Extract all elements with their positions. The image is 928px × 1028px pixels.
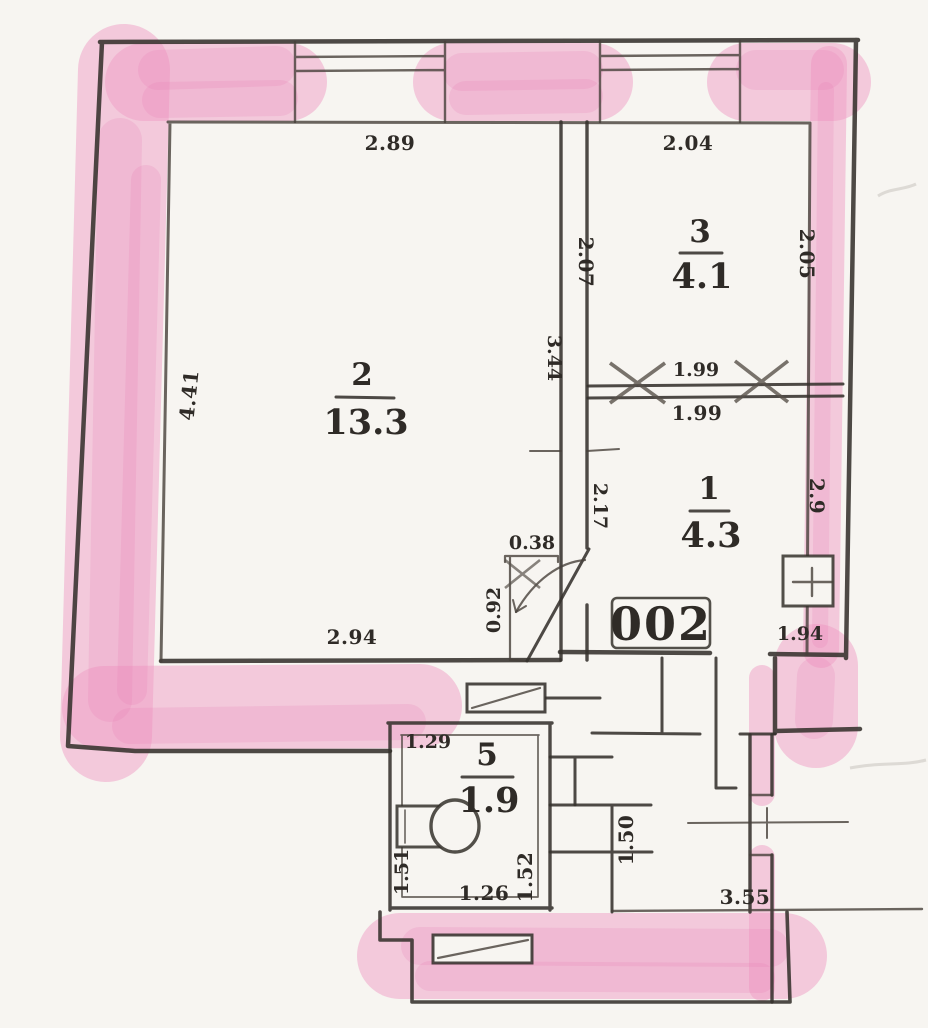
- room2-fraction-line: [336, 397, 394, 398]
- room2-number: 2: [351, 357, 373, 393]
- dim-room5-bottom: 1.26: [459, 881, 510, 905]
- room2-area: 13.3: [323, 402, 408, 443]
- scanned-floor-plan-page: 002 2 13.3 3 4.1 1 4.3 5 1.9 2.89 4.41 2…: [0, 0, 928, 1028]
- room1-number: 1: [698, 471, 720, 507]
- dim-room3-top: 2.04: [663, 131, 714, 155]
- room1-area: 4.3: [681, 515, 742, 556]
- marker-texture: [466, 96, 586, 98]
- dim-room1-bottom: 1.94: [777, 623, 823, 645]
- marker-texture: [430, 976, 760, 978]
- dim-hall-wall: 2.17: [589, 483, 611, 529]
- room3-area: 4.1: [672, 256, 733, 297]
- marker-texture: [814, 676, 816, 720]
- dim-partition-left: 3.44: [543, 335, 565, 381]
- dim-door-depth: 0.92: [483, 587, 505, 633]
- marker-texture: [160, 98, 280, 100]
- marker-texture: [110, 140, 120, 700]
- marker-texture: [462, 70, 584, 72]
- niche-box: [783, 556, 833, 606]
- dim-room2-top: 2.89: [365, 131, 416, 155]
- dim-room5-right: 1.52: [513, 852, 537, 903]
- dim-partition-lower: 1.99: [672, 401, 723, 425]
- apartment-number: 002: [610, 597, 712, 651]
- room3-number: 3: [689, 214, 711, 250]
- room5-number: 5: [476, 737, 498, 773]
- floorplan-svg: 002 2 13.3 3 4.1 1 4.3 5 1.9 2.89 4.41 2…: [0, 0, 928, 1028]
- marker-texture: [130, 722, 408, 726]
- dim-lower-room-bottom: 3.55: [720, 885, 771, 909]
- dim-room3-right: 2.05: [795, 229, 819, 280]
- room5-area: 1.9: [459, 780, 520, 821]
- dim-room1-right: 2.9: [805, 478, 829, 514]
- dim-partition-upper: 1.99: [673, 359, 719, 381]
- dim-room3-left: 2.07: [574, 237, 598, 288]
- dim-room5-top: 1.29: [405, 731, 451, 753]
- marker-texture: [158, 66, 276, 70]
- dim-room5-left: 1.51: [391, 849, 413, 895]
- apartment-number-box: 002: [610, 597, 712, 651]
- dim-room2-bottom: 2.94: [327, 625, 378, 649]
- dim-lower-room-left: 1.50: [614, 815, 638, 866]
- marker-texture: [132, 180, 146, 690]
- dim-door-width: 0.38: [509, 532, 555, 554]
